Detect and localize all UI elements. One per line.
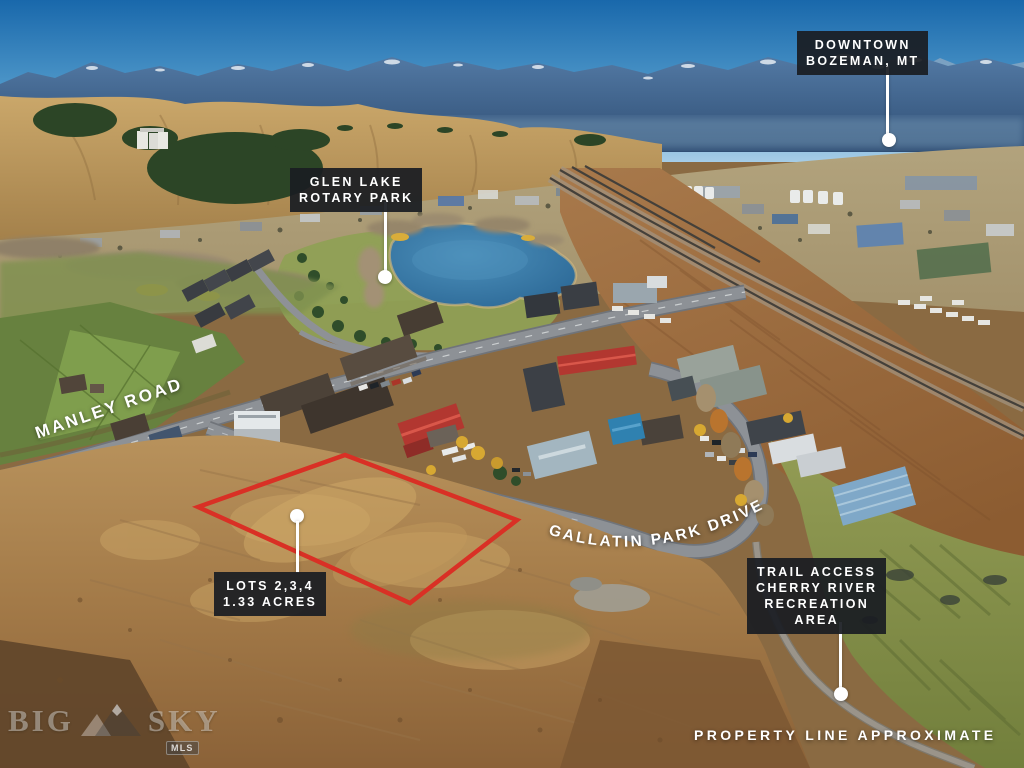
label-downtown-bozeman: DOWNTOWN BOZEMAN, MT: [797, 31, 928, 75]
property-line-note: PROPERTY LINE APPROXIMATE: [694, 727, 997, 743]
leader-line-lots: [296, 521, 299, 573]
label-line: RECREATION: [756, 596, 877, 612]
label-line: AREA: [756, 612, 877, 628]
watermark: BIG SKY MLS: [8, 702, 221, 736]
label-line: DOWNTOWN: [806, 37, 919, 53]
label-line: 1.33 ACRES: [223, 594, 317, 610]
aerial-property-photo: GALLATIN PARK DRIVE DOWNTOWN BOZEMAN, MT…: [0, 0, 1024, 768]
watermark-word-sky: SKY: [148, 705, 221, 736]
marker-dot-glen-lake: [378, 270, 392, 284]
label-line: CHERRY RIVER: [756, 580, 877, 596]
label-line: TRAIL ACCESS: [756, 564, 877, 580]
label-line: ROTARY PARK: [299, 190, 413, 206]
leader-line-downtown: [886, 66, 889, 134]
mls-badge: MLS: [166, 741, 199, 755]
marker-dot-downtown: [882, 133, 896, 147]
label-line: BOZEMAN, MT: [806, 53, 919, 69]
label-trail-access: TRAIL ACCESS CHERRY RIVER RECREATION ARE…: [747, 558, 886, 634]
red-roof-building-east: [557, 346, 637, 376]
marker-dot-trail: [834, 687, 848, 701]
mountain-logo-icon: [79, 702, 143, 736]
watermark-word-big: BIG: [8, 705, 74, 736]
label-line: GLEN LAKE: [299, 174, 413, 190]
grain-elevator: [137, 128, 168, 149]
label-line: LOTS 2,3,4: [223, 578, 317, 594]
leader-line-glen-lake: [384, 202, 387, 272]
label-glen-lake-rotary-park: GLEN LAKE ROTARY PARK: [290, 168, 422, 212]
label-lots-acres: LOTS 2,3,4 1.33 ACRES: [214, 572, 326, 616]
